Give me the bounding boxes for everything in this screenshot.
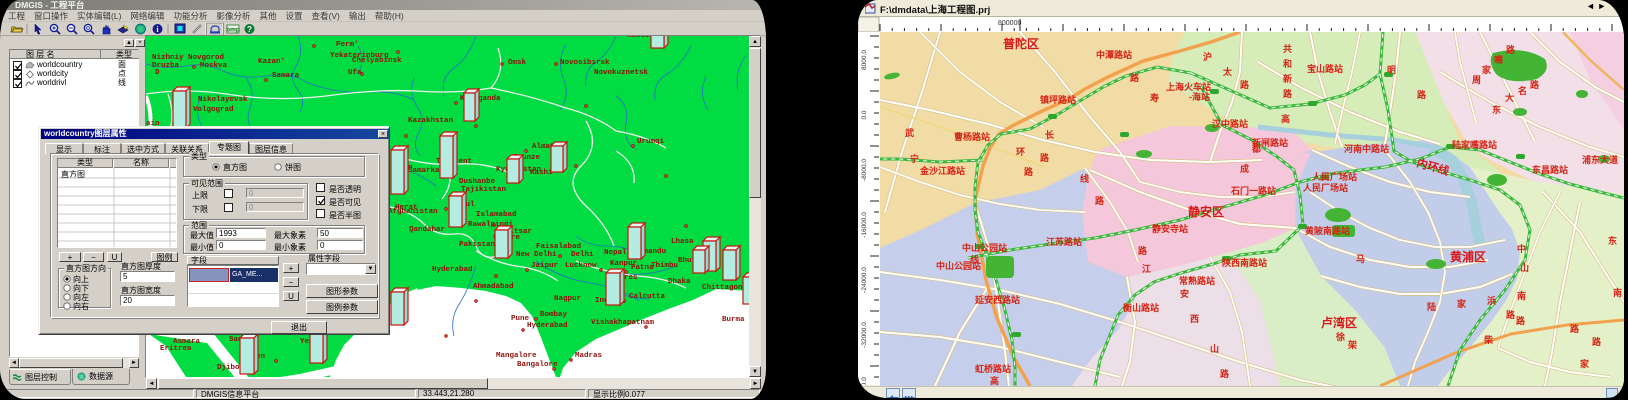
svg-text:Delhi: Delhi (571, 251, 594, 259)
svg-text:安: 安 (1180, 288, 1189, 299)
svg-text:Volgograd: Volgograd (193, 106, 234, 114)
svg-text:New Delhi: New Delhi (516, 251, 557, 259)
svg-text:金沙江路站: 金沙江路站 (919, 165, 965, 176)
svg-text:江苏路站: 江苏路站 (1046, 236, 1082, 247)
svg-text:Novokuznetsk: Novokuznetsk (594, 69, 649, 77)
svg-text:Urumqi: Urumqi (637, 138, 665, 146)
svg-text:南: 南 (1613, 287, 1622, 298)
svg-text:浜: 浜 (1487, 295, 1496, 306)
svg-text:家: 家 (1580, 358, 1590, 369)
svg-text:曹杨路站: 曹杨路站 (954, 131, 990, 142)
svg-text:Qandahar: Qandahar (409, 226, 445, 234)
svg-text:bmp: bmp (226, 27, 240, 34)
svg-text:Mangalore: Mangalore (496, 352, 537, 360)
svg-text:镇坪路站: 镇坪路站 (1040, 94, 1076, 105)
svg-text:衡山路站: 衡山路站 (1123, 302, 1159, 313)
svg-text:汉中路站: 汉中路站 (1212, 118, 1248, 129)
svg-text:名: 名 (1518, 85, 1527, 96)
svg-text:人民广场站: 人民广场站 (1311, 171, 1357, 182)
svg-text:Islamabad: Islamabad (476, 211, 517, 219)
svg-text:Tajikistan: Tajikistan (461, 186, 507, 194)
svg-text:黄浦区: 黄浦区 (1450, 249, 1486, 264)
svg-text:路: 路 (1220, 368, 1230, 379)
svg-text:中潭路站: 中潭路站 (1096, 49, 1132, 60)
svg-text:Madras: Madras (575, 352, 603, 360)
svg-text:Kazakhstan: Kazakhstan (408, 117, 454, 125)
svg-text:静安区: 静安区 (1188, 204, 1224, 219)
svg-text:路: 路 (1283, 88, 1293, 99)
svg-text:上海火车站: 上海火车站 (1166, 81, 1211, 92)
svg-text:太: 太 (1222, 66, 1233, 77)
svg-text:Kazan': Kazan' (258, 58, 285, 66)
svg-text:虹桥路站: 虹桥路站 (975, 363, 1011, 374)
svg-text:长: 长 (1045, 129, 1055, 140)
svg-text:路: 路 (1040, 152, 1050, 163)
svg-text:线: 线 (970, 254, 979, 265)
svg-text:和: 和 (1282, 58, 1292, 69)
svg-text:江: 江 (1142, 263, 1151, 274)
svg-text:成: 成 (1240, 163, 1249, 174)
svg-text:陆家嘴路站: 陆家嘴路站 (1452, 139, 1497, 150)
svg-text:共: 共 (1283, 43, 1292, 54)
svg-text:沪: 沪 (1203, 51, 1212, 62)
svg-text:都: 都 (1251, 143, 1261, 154)
svg-text:Perm': Perm' (336, 41, 359, 49)
svg-text:河南中路站: 河南中路站 (1344, 143, 1389, 154)
svg-text:Hyderabad: Hyderabad (432, 266, 473, 274)
svg-text:南: 南 (1517, 290, 1526, 301)
svg-text:大: 大 (1505, 92, 1514, 103)
svg-text:Ufa: Ufa (348, 69, 362, 77)
svg-text:Chelyabinsk: Chelyabinsk (352, 57, 402, 65)
svg-text:8000.0: 8000.0 (861, 50, 868, 70)
svg-text:高: 高 (990, 375, 999, 386)
svg-text:Omsk: Omsk (508, 59, 527, 67)
svg-text:Bangalore: Bangalore (517, 361, 558, 369)
svg-text:D: D (155, 69, 160, 77)
svg-text:Dushanbe: Dushanbe (459, 178, 496, 186)
svg-text:-40000.0: -40000.0 (861, 377, 868, 385)
svg-text:800000: 800000 (998, 20, 1021, 27)
svg-text:Ahmadabad: Ahmadabad (473, 283, 514, 291)
svg-text:Nagpur: Nagpur (554, 295, 581, 303)
svg-text:Thimbu: Thimbu (651, 262, 678, 270)
svg-text:Novosibirsk: Novosibirsk (560, 59, 610, 67)
svg-text:Kashi: Kashi (530, 169, 553, 177)
svg-text:路: 路 (1240, 79, 1250, 90)
svg-text:Moskva: Moskva (200, 62, 228, 70)
svg-text:路: 路 (1417, 89, 1427, 100)
svg-text:Afghanistan: Afghanistan (388, 208, 438, 216)
svg-text:嘴: 嘴 (1494, 54, 1503, 65)
svg-text:Bombay: Bombay (540, 311, 568, 319)
svg-text:中: 中 (1517, 243, 1526, 254)
svg-text:陆: 陆 (1427, 301, 1436, 312)
svg-text:Vishakhapatnam: Vishakhapatnam (591, 319, 655, 327)
svg-text:徐: 徐 (1335, 331, 1345, 342)
svg-text:东: 东 (1608, 235, 1617, 246)
svg-text:路: 路 (1130, 72, 1140, 83)
svg-text:Lhasa: Lhasa (671, 238, 694, 246)
svg-text:陕西南路站: 陕西南路站 (1222, 257, 1267, 268)
svg-text:路: 路 (1516, 315, 1526, 326)
svg-text:高: 高 (1281, 113, 1290, 124)
svg-text:Nepal: Nepal (604, 249, 627, 257)
svg-text:延安西路站: 延安西路站 (974, 294, 1020, 305)
svg-text:路: 路 (1530, 79, 1540, 90)
svg-text:寿: 寿 (1150, 92, 1159, 103)
svg-text:东: 东 (1492, 104, 1501, 115)
svg-text:Eritrea: Eritrea (160, 345, 192, 353)
svg-text:路: 路 (1592, 336, 1602, 347)
svg-text:Chittagong: Chittagong (702, 284, 748, 292)
svg-text:静安寺站: 静安寺站 (1152, 223, 1188, 234)
svg-text:石门一路站: 石门一路站 (1230, 185, 1276, 196)
svg-text:Burma: Burma (722, 316, 745, 324)
svg-text:家: 家 (1482, 64, 1492, 75)
svg-text:路: 路 (1570, 323, 1580, 334)
svg-text:人民厂场站: 人民厂场站 (1302, 182, 1348, 193)
svg-text:Lucknow: Lucknow (565, 262, 597, 270)
svg-text:Jaipur: Jaipur (531, 262, 558, 270)
svg-text:马: 马 (1356, 254, 1365, 264)
svg-text:武: 武 (905, 127, 914, 138)
svg-text:环: 环 (1016, 147, 1025, 157)
svg-text:卢湾区: 卢湾区 (1321, 315, 1357, 330)
svg-text:中山公园站: 中山公园站 (962, 242, 1007, 253)
svg-text:Russi: Russi (627, 36, 650, 40)
svg-text:Faisalabad: Faisalabad (536, 243, 581, 251)
svg-text:-32000.0: -32000.0 (861, 322, 868, 348)
svg-text:Calcutta: Calcutta (629, 293, 666, 301)
svg-text:黄陂南路站: 黄陂南路站 (1305, 225, 1350, 236)
svg-text:架: 架 (1347, 339, 1357, 350)
svg-text:Nikolayevsk: Nikolayevsk (198, 96, 248, 104)
svg-text:周: 周 (1472, 75, 1481, 85)
svg-text:宁: 宁 (910, 153, 919, 164)
svg-text:西: 西 (1190, 314, 1199, 324)
svg-text:山: 山 (1520, 262, 1529, 273)
svg-text:路: 路 (1506, 309, 1516, 320)
svg-text:路: 路 (1506, 44, 1516, 55)
svg-text:-8000.0: -8000.0 (861, 159, 868, 181)
svg-text:Dhaka: Dhaka (668, 278, 691, 286)
svg-text:路: 路 (1138, 245, 1148, 256)
svg-text:宝山路站: 宝山路站 (1307, 63, 1343, 74)
svg-text:0.0: 0.0 (861, 110, 868, 119)
svg-text:浦东大道: 浦东大道 (1582, 154, 1618, 165)
svg-text:山: 山 (1210, 343, 1219, 354)
svg-text:Pakistan: Pakistan (459, 241, 496, 249)
svg-text:普陀区: 普陀区 (1003, 36, 1039, 51)
svg-text:路: 路 (1095, 195, 1105, 206)
svg-text:-海站: -海站 (1189, 91, 1210, 102)
svg-text:?: ? (247, 24, 252, 34)
svg-text:东昌路站: 东昌路站 (1532, 164, 1568, 175)
svg-text:家: 家 (1457, 298, 1467, 309)
svg-text:柴: 柴 (1483, 334, 1494, 345)
svg-text:明: 明 (1387, 65, 1396, 75)
svg-text:Samara: Samara (272, 72, 300, 80)
svg-text:新: 新 (1283, 73, 1292, 84)
svg-text:线: 线 (1080, 173, 1089, 184)
svg-text:-24000.0: -24000.0 (861, 267, 868, 293)
svg-text:Hyderabad: Hyderabad (527, 322, 568, 330)
svg-text:-16000.0: -16000.0 (861, 212, 868, 238)
svg-text:路: 路 (1024, 166, 1034, 177)
svg-text:Nizhniy Novgorod: Nizhniy Novgorod (152, 54, 224, 62)
svg-text:常熟路站: 常熟路站 (1179, 275, 1215, 286)
